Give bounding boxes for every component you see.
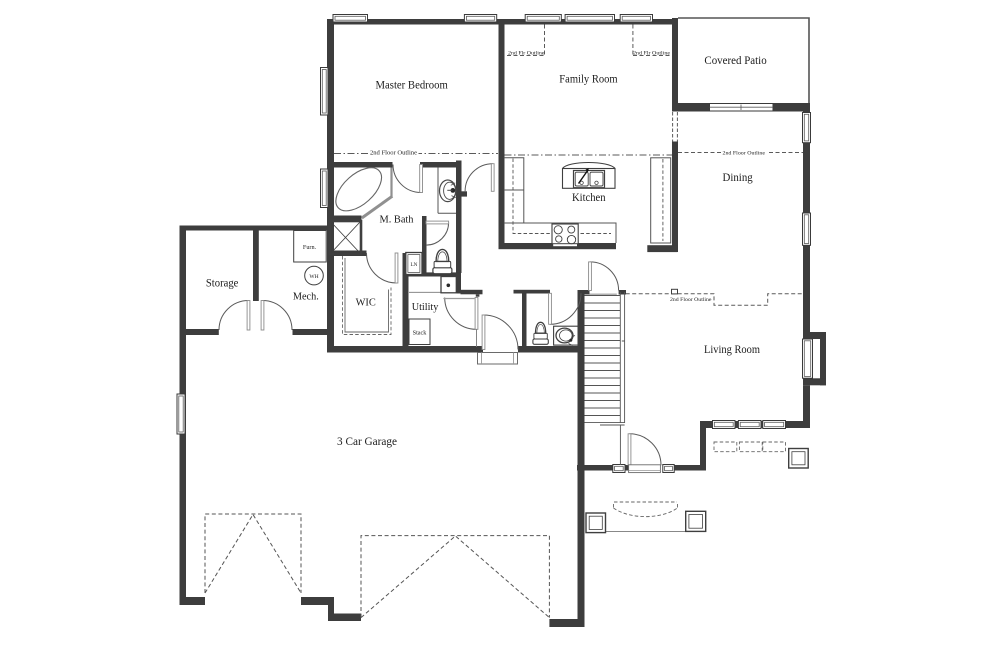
svg-text:Master Bedroom: Master Bedroom <box>376 78 449 92</box>
svg-text:Family Room: Family Room <box>559 71 618 85</box>
svg-text:2nd Floor Outline: 2nd Floor Outline <box>670 297 712 303</box>
svg-text:Mech.: Mech. <box>293 292 319 303</box>
svg-text:M. Bath: M. Bath <box>380 215 415 226</box>
svg-text:Storage: Storage <box>206 276 239 290</box>
svg-text:Furn.: Furn. <box>303 244 317 251</box>
svg-text:Kitchen: Kitchen <box>572 190 606 204</box>
svg-text:2nd Floor Outline: 2nd Floor Outline <box>723 150 766 156</box>
svg-text:Covered Patio: Covered Patio <box>704 53 766 67</box>
svg-text:Living Room: Living Room <box>704 342 761 356</box>
svg-text:2nd Flr Outline: 2nd Flr Outline <box>633 50 671 56</box>
svg-text:LN: LN <box>410 262 417 268</box>
svg-text:2nd Flr Outline: 2nd Flr Outline <box>508 50 545 56</box>
svg-text:3 Car Garage: 3 Car Garage <box>337 434 397 448</box>
svg-text:WIC: WIC <box>356 298 376 309</box>
svg-text:Utility: Utility <box>412 302 439 313</box>
svg-text:WH: WH <box>309 274 318 280</box>
svg-text:Stack: Stack <box>413 330 428 337</box>
svg-text:2nd Floor Outline: 2nd Floor Outline <box>370 149 417 156</box>
svg-text:Dining: Dining <box>723 170 753 184</box>
